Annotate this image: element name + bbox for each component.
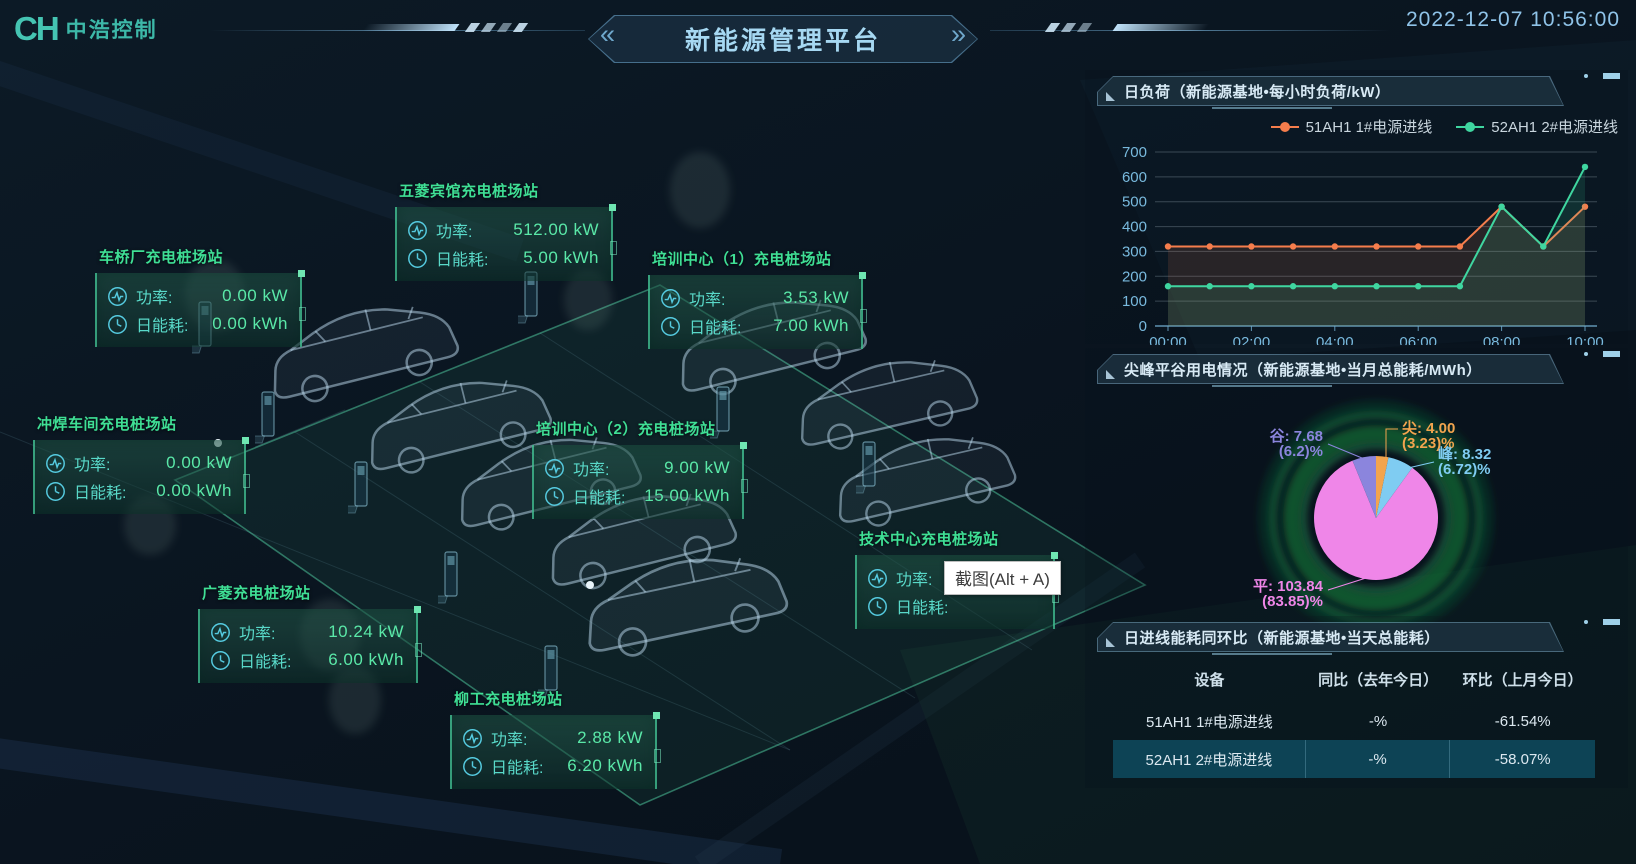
energy-clock-icon	[660, 316, 681, 337]
station-name: 五菱宾馆充电桩场站	[399, 180, 613, 201]
power-value: 0.00 kW	[166, 453, 232, 473]
power-gauge-icon	[660, 288, 681, 309]
station-card-training-center-2[interactable]: 培训中心（2）充电桩场站 功率:9.00 kW 日能耗:15.00 kWh	[532, 418, 744, 519]
data-point	[1582, 164, 1588, 170]
power-gauge-icon	[462, 728, 483, 749]
power-value: 0.00 kW	[222, 286, 288, 306]
station-name: 技术中心充电桩场站	[859, 528, 1055, 549]
station-name: 培训中心（1）充电桩场站	[652, 248, 863, 269]
power-gauge-icon	[45, 453, 66, 474]
legend-marker	[1456, 126, 1484, 128]
power-value: 512.00 kW	[513, 220, 599, 240]
energy-clock-icon	[45, 481, 66, 502]
svg-text:400: 400	[1122, 219, 1147, 236]
power-gauge-icon	[544, 458, 565, 479]
compare-table: 设备 同比（去年今日） 环比（上月今日） 51AH1 1#电源进线 -% -61…	[1113, 660, 1595, 778]
station-metrics-card: 功率:10.24 kW 日能耗:6.00 kWh	[198, 609, 418, 683]
energy-value: 6.00 kWh	[328, 650, 404, 670]
pie-label-percent: (83.85)%	[1262, 593, 1323, 610]
data-point	[1415, 243, 1421, 249]
power-label: 功率:	[239, 620, 275, 644]
screenshot-tooltip: 截图(Alt + A)	[944, 561, 1061, 595]
header-slashes-left	[468, 23, 525, 32]
station-metrics-card: 功率:3.53 kW 日能耗:7.00 kWh	[648, 275, 863, 349]
col-header-mom: 环比（上月今日）	[1450, 669, 1595, 690]
data-point	[1332, 283, 1338, 289]
svg-text:04:00: 04:00	[1316, 334, 1354, 345]
power-label: 功率:	[689, 286, 725, 310]
energy-clock-icon	[544, 486, 565, 507]
cell-yoy: -%	[1306, 740, 1451, 778]
data-point	[1290, 283, 1296, 289]
data-point	[1373, 243, 1379, 249]
energy-clock-icon	[407, 248, 428, 269]
power-label: 功率:	[491, 726, 527, 750]
datetime: 2022-12-07 10:56:00	[1406, 8, 1620, 32]
data-point	[1207, 283, 1213, 289]
cell-device: 52AH1 2#电源进线	[1113, 740, 1306, 778]
svg-text:02:00: 02:00	[1233, 334, 1271, 345]
station-name: 广菱充电桩场站	[202, 582, 418, 603]
power-gauge-icon	[107, 286, 128, 307]
cell-device: 51AH1 1#电源进线	[1113, 711, 1306, 732]
svg-text:0: 0	[1139, 318, 1147, 335]
table-header-row: 设备 同比（去年今日） 环比（上月今日）	[1113, 660, 1595, 698]
data-point	[1165, 243, 1171, 249]
page-title-box: 新能源管理平台 « »	[588, 15, 978, 63]
data-point	[1332, 243, 1338, 249]
station-name: 柳工充电桩场站	[454, 688, 657, 709]
chevron-left-icon: «	[600, 19, 615, 50]
data-point	[1373, 283, 1379, 289]
power-value: 2.88 kW	[577, 728, 643, 748]
page-title: 新能源管理平台	[685, 21, 881, 57]
logo-mark: CH	[14, 10, 58, 48]
panel-title: 日进线能耗同环比（新能源基地•当天总能耗）	[1124, 627, 1440, 648]
chevron-right-icon: »	[951, 19, 966, 50]
energy-clock-icon	[107, 314, 128, 335]
energy-label: 日能耗:	[491, 754, 543, 778]
legend-item-51ah1[interactable]: 51AH1 1#电源进线	[1271, 116, 1433, 137]
energy-value: 0.00 kWh	[212, 314, 288, 334]
station-name: 培训中心（2）充电桩场站	[536, 418, 744, 439]
station-name: 车桥厂充电桩场站	[99, 246, 302, 267]
cell-yoy: -%	[1306, 713, 1451, 730]
data-point	[1248, 243, 1254, 249]
panel-peak-valley: 尖峰平谷用电情况（新能源基地•当月总能耗/MWh） 尖: 4.00(3.23)%…	[1085, 348, 1628, 616]
legend-marker	[1271, 126, 1299, 128]
corner-triangle-icon	[1106, 638, 1115, 647]
energy-value: 5.00 kWh	[523, 248, 599, 268]
energy-label: 日能耗:	[239, 648, 291, 672]
pie-label-percent: (6.72)%	[1438, 461, 1491, 478]
svg-text:600: 600	[1122, 169, 1147, 186]
station-metrics-card: 功率:9.00 kW 日能耗:15.00 kWh	[532, 445, 744, 519]
corner-triangle-icon	[1106, 370, 1115, 379]
data-point	[1498, 203, 1504, 209]
svg-text:00:00: 00:00	[1149, 334, 1187, 345]
energy-label: 日能耗:	[896, 594, 948, 618]
col-header-device: 设备	[1113, 669, 1306, 690]
power-value: 3.53 kW	[783, 288, 849, 308]
power-value: 9.00 kW	[664, 458, 730, 478]
svg-text:06:00: 06:00	[1399, 334, 1437, 345]
panel-energy-compare: 日进线能耗同环比（新能源基地•当天总能耗） 设备 同比（去年今日） 环比（上月今…	[1085, 616, 1628, 788]
station-card-liugong[interactable]: 柳工充电桩场站 功率:2.88 kW 日能耗:6.20 kWh	[450, 688, 657, 789]
daily-load-line-chart: 010020030040050060070000:0002:0004:0006:…	[1085, 140, 1628, 345]
energy-label: 日能耗:	[74, 479, 126, 503]
station-metrics-card: 功率:0.00 kW 日能耗:0.00 kWh	[95, 273, 302, 347]
energy-label: 日能耗:	[436, 246, 488, 270]
deco-dot-icon	[1584, 352, 1588, 356]
station-metrics-card: 功率:2.88 kW 日能耗:6.20 kWh	[450, 715, 657, 789]
station-card-cheqiaochang[interactable]: 车桥厂充电桩场站 功率:0.00 kW 日能耗:0.00 kWh	[95, 246, 302, 347]
title-underline	[1212, 107, 1332, 109]
table-row[interactable]: 51AH1 1#电源进线 -% -61.54%	[1113, 702, 1595, 740]
power-label: 功率:	[573, 456, 609, 480]
energy-value: 0.00 kWh	[156, 481, 232, 501]
svg-text:300: 300	[1122, 243, 1147, 260]
data-point	[1290, 243, 1296, 249]
peak-valley-pie-chart: 尖: 4.00(3.23)%峰: 8.32(6.72)%平: 103.84(83…	[1085, 390, 1628, 650]
title-box-inner: 新能源管理平台	[589, 16, 977, 62]
svg-text:10:00: 10:00	[1566, 334, 1604, 345]
energy-clock-icon	[462, 756, 483, 777]
pie-label-percent: (6.2)%	[1279, 443, 1323, 460]
table-row-selected[interactable]: 52AH1 2#电源进线 -% -58.07%	[1113, 740, 1595, 778]
col-header-yoy: 同比（去年今日）	[1306, 669, 1451, 690]
station-name: 冲焊车间充电桩场站	[37, 413, 246, 434]
station-card-chonghan-workshop[interactable]: 冲焊车间充电桩场站 功率:0.00 kW 日能耗:0.00 kWh	[33, 413, 246, 514]
power-label: 功率:	[136, 284, 172, 308]
title-underline	[1212, 653, 1332, 655]
header-slashes-right	[1048, 23, 1089, 32]
panel-title: 尖峰平谷用电情况（新能源基地•当月总能耗/MWh）	[1124, 359, 1482, 380]
station-card-wuling-hotel[interactable]: 五菱宾馆充电桩场站 功率:512.00 kW 日能耗:5.00 kWh	[395, 180, 613, 281]
cell-mom: -58.07%	[1450, 740, 1595, 778]
deco-dash-icon	[1603, 73, 1620, 79]
deco-dash-icon	[1603, 619, 1620, 625]
svg-text:100: 100	[1122, 293, 1147, 310]
data-point	[1457, 243, 1463, 249]
energy-clock-icon	[210, 650, 231, 671]
header-streak-left	[363, 24, 460, 31]
title-underline	[1212, 385, 1332, 387]
svg-text:200: 200	[1122, 268, 1147, 285]
legend-label: 52AH1 2#电源进线	[1491, 116, 1618, 137]
legend-item-52ah1[interactable]: 52AH1 2#电源进线	[1456, 116, 1618, 137]
data-point	[1248, 283, 1254, 289]
power-label: 功率:	[896, 566, 932, 590]
legend-label: 51AH1 1#电源进线	[1306, 116, 1433, 137]
panel-daily-load: 日负荷（新能源基地•每小时负荷/kW） 51AH1 1#电源进线 52AH1 2…	[1085, 70, 1628, 344]
header: CH 中浩控制 新能源管理平台 « » 2022-12-07 10:56:00	[0, 0, 1636, 64]
panel-header: 尖峰平谷用电情况（新能源基地•当月总能耗/MWh）	[1097, 354, 1564, 384]
panel-header: 日负荷（新能源基地•每小时负荷/kW）	[1097, 76, 1564, 106]
energy-value: 15.00 kWh	[644, 486, 730, 506]
data-point	[1415, 283, 1421, 289]
deco-dot-icon	[1584, 620, 1588, 624]
data-point	[1165, 283, 1171, 289]
svg-text:500: 500	[1122, 194, 1147, 211]
station-card-training-center-1[interactable]: 培训中心（1）充电桩场站 功率:3.53 kW 日能耗:7.00 kWh	[648, 248, 863, 349]
power-gauge-icon	[407, 220, 428, 241]
power-label: 功率:	[74, 451, 110, 475]
panel-header: 日进线能耗同环比（新能源基地•当天总能耗）	[1097, 622, 1564, 652]
cell-mom: -61.54%	[1450, 713, 1595, 730]
data-point	[1457, 283, 1463, 289]
data-point	[1540, 243, 1546, 249]
data-point	[1207, 243, 1213, 249]
panel-title: 日负荷（新能源基地•每小时负荷/kW）	[1124, 81, 1390, 102]
energy-label: 日能耗:	[689, 314, 741, 338]
energy-clock-icon	[867, 596, 888, 617]
power-gauge-icon	[867, 568, 888, 589]
station-card-guangling[interactable]: 广菱充电桩场站 功率:10.24 kW 日能耗:6.00 kWh	[198, 582, 418, 683]
deco-dot-icon	[1584, 74, 1588, 78]
station-metrics-card: 功率:512.00 kW 日能耗:5.00 kWh	[395, 207, 613, 281]
energy-value: 7.00 kWh	[773, 316, 849, 336]
svg-text:700: 700	[1122, 144, 1147, 161]
svg-text:08:00: 08:00	[1483, 334, 1521, 345]
power-gauge-icon	[210, 622, 231, 643]
chart-legend: 51AH1 1#电源进线 52AH1 2#电源进线	[1271, 116, 1618, 137]
header-streak-right	[1113, 24, 1210, 31]
energy-label: 日能耗:	[573, 484, 625, 508]
deco-dash-icon	[1603, 351, 1620, 357]
energy-value: 6.20 kWh	[567, 756, 643, 776]
power-label: 功率:	[436, 218, 472, 242]
logo: CH 中浩控制	[14, 10, 158, 48]
station-metrics-card: 功率:0.00 kW 日能耗:0.00 kWh	[33, 440, 246, 514]
power-value: 10.24 kW	[328, 622, 404, 642]
corner-triangle-icon	[1106, 92, 1115, 101]
logo-text: 中浩控制	[66, 14, 158, 44]
energy-label: 日能耗:	[136, 312, 188, 336]
